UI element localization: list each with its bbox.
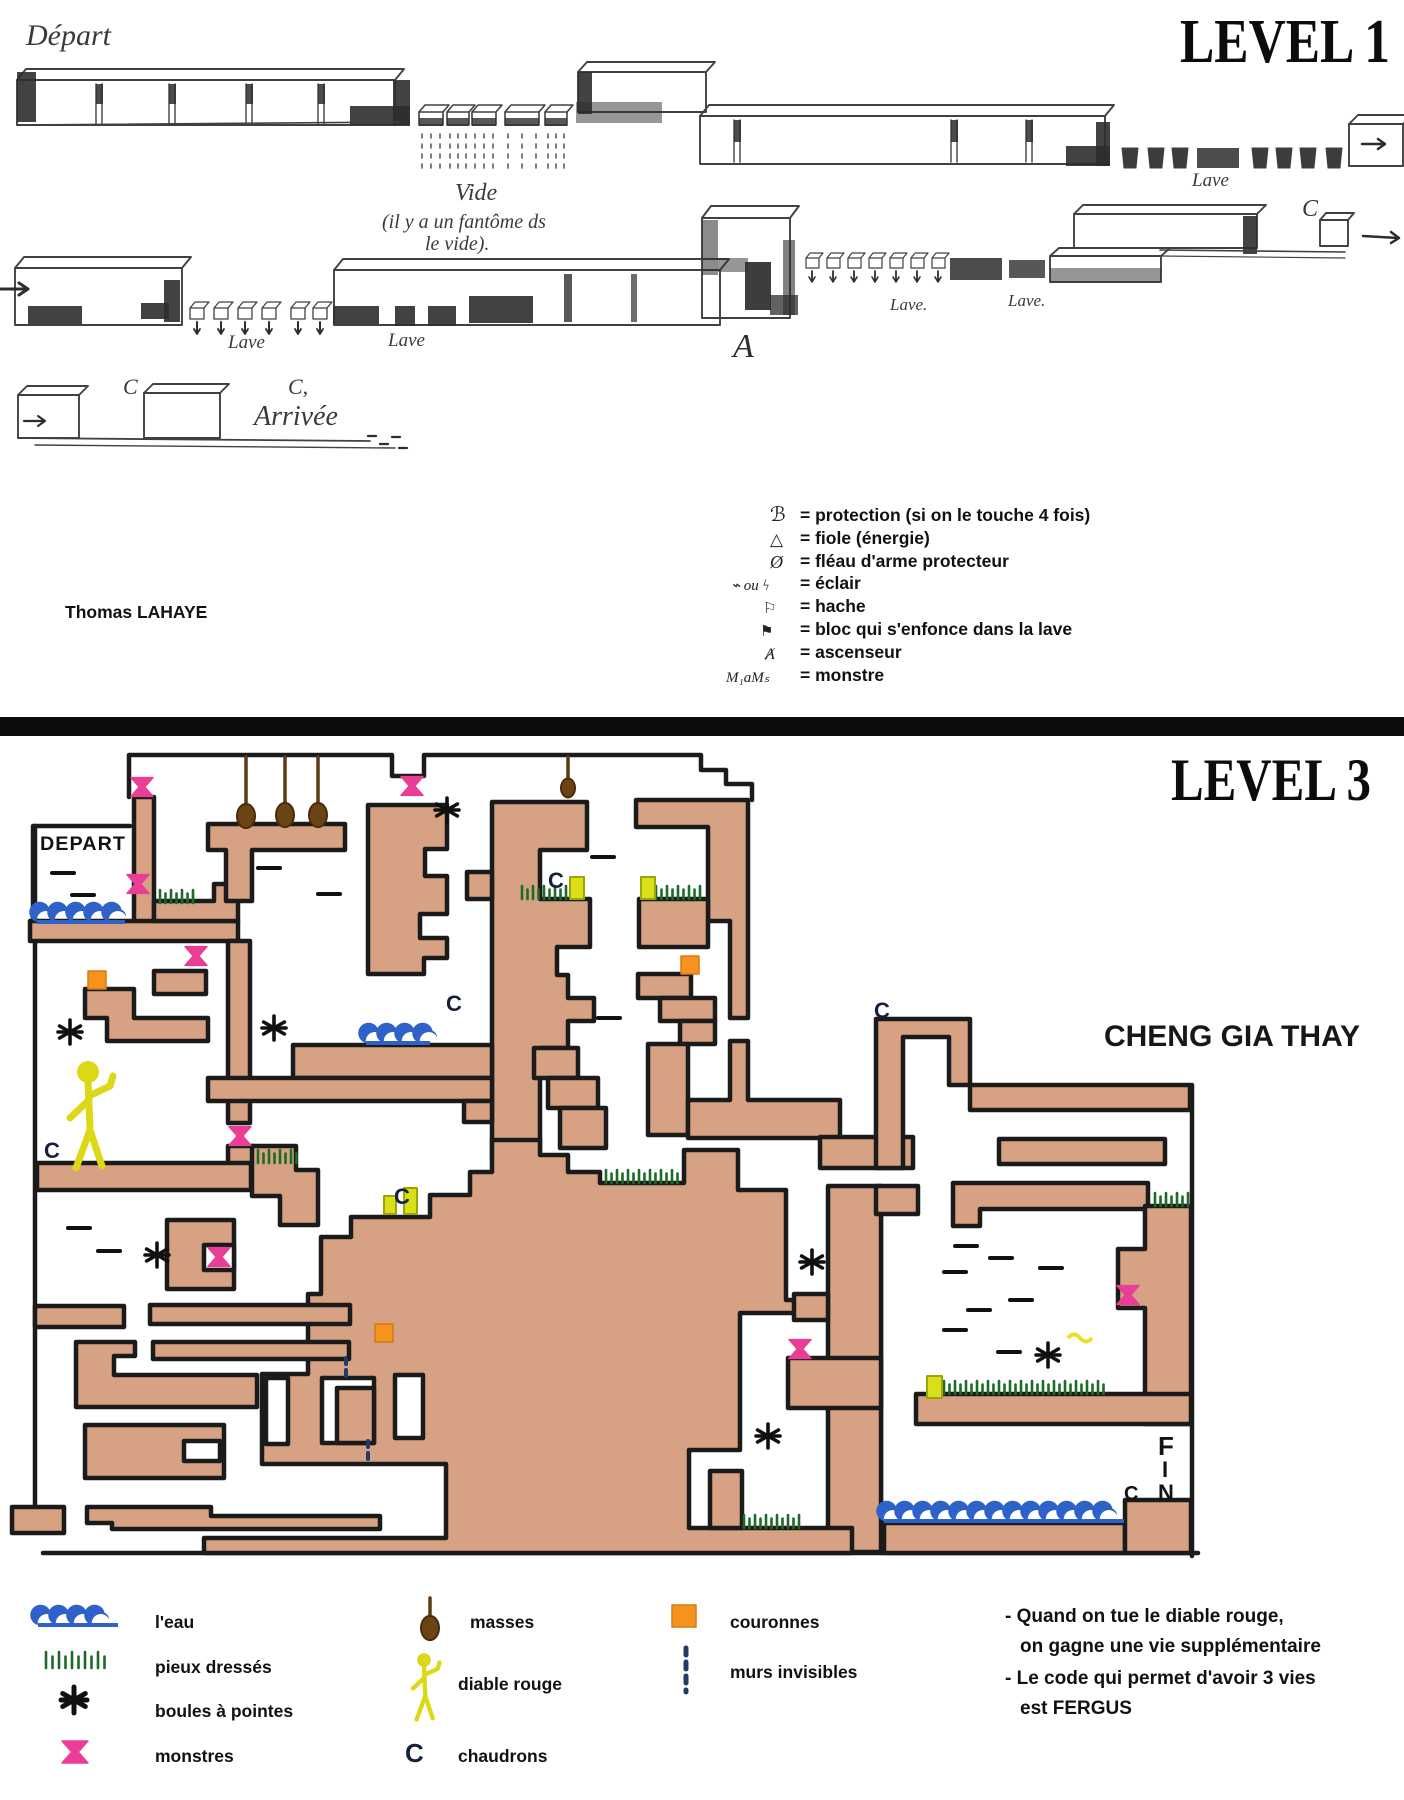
svg-text:est FERGUS: est FERGUS bbox=[1020, 1698, 1132, 1719]
svg-text:C: C bbox=[394, 1184, 410, 1209]
svg-text:= fiole (énergie): = fiole (énergie) bbox=[800, 528, 930, 548]
svg-text:= hache: = hache bbox=[800, 596, 866, 616]
svg-text:pieux dressés: pieux dressés bbox=[155, 1657, 272, 1677]
svg-text:chaudrons: chaudrons bbox=[458, 1746, 548, 1766]
svg-text:Lave.: Lave. bbox=[889, 295, 927, 314]
svg-text:LEVEL 3: LEVEL 3 bbox=[1171, 747, 1371, 813]
svg-text:(il y a un fantôme ds: (il y a un fantôme ds bbox=[382, 211, 546, 233]
svg-text:monstres: monstres bbox=[155, 1746, 234, 1766]
svg-text:- Quand on tue le diable rouge: - Quand on tue le diable rouge, bbox=[1005, 1606, 1284, 1627]
svg-text:Arrivée: Arrivée bbox=[252, 401, 338, 432]
svg-text:A: A bbox=[731, 328, 754, 365]
svg-text:Ⱥ: Ⱥ bbox=[764, 646, 776, 663]
svg-text:△: △ bbox=[770, 530, 784, 549]
svg-text:N: N bbox=[1158, 1480, 1174, 1505]
svg-text:le vide).: le vide). bbox=[425, 233, 489, 255]
svg-text:C,: C, bbox=[288, 374, 308, 399]
svg-text:couronnes: couronnes bbox=[730, 1612, 820, 1632]
svg-text:C: C bbox=[1124, 1483, 1138, 1505]
svg-text:diable rouge: diable rouge bbox=[458, 1674, 562, 1694]
svg-text:- Le code qui permet d'avoir 3: - Le code qui permet d'avoir 3 vies bbox=[1005, 1668, 1316, 1689]
svg-text:l'eau: l'eau bbox=[155, 1612, 194, 1632]
svg-text:on gagne une vie supplémentair: on gagne une vie supplémentaire bbox=[1020, 1636, 1321, 1657]
svg-text:= protection (si on le touche: = protection (si on le touche 4 fois) bbox=[800, 505, 1090, 525]
svg-text:M₁aMₛ: M₁aMₛ bbox=[725, 670, 770, 686]
svg-text:CHENG GIA THAY: CHENG GIA THAY bbox=[1104, 1020, 1360, 1053]
svg-text:⌁ ou ϟ: ⌁ ou ϟ bbox=[731, 578, 770, 594]
svg-text:⚑: ⚑ bbox=[760, 624, 773, 640]
svg-text:C: C bbox=[548, 868, 564, 893]
svg-text:= bloc qui s'enfonce dans la l: = bloc qui s'enfonce dans la lave bbox=[800, 619, 1072, 639]
svg-text:= monstre: = monstre bbox=[800, 665, 884, 685]
svg-text:Thomas LAHAYE: Thomas LAHAYE bbox=[65, 602, 207, 622]
svg-text:I: I bbox=[1162, 1457, 1168, 1482]
svg-text:C: C bbox=[405, 1738, 424, 1768]
svg-text:LEVEL 1: LEVEL 1 bbox=[1180, 8, 1390, 76]
svg-text:= ascenseur: = ascenseur bbox=[800, 642, 902, 662]
svg-text:Départ: Départ bbox=[25, 19, 112, 52]
svg-text:C: C bbox=[44, 1138, 60, 1163]
svg-text:murs invisibles: murs invisibles bbox=[730, 1662, 858, 1682]
svg-text:boules à pointes: boules à pointes bbox=[155, 1701, 293, 1721]
svg-text:C: C bbox=[446, 991, 462, 1016]
svg-text:⚐: ⚐ bbox=[763, 601, 776, 617]
svg-text:masses: masses bbox=[470, 1612, 534, 1632]
svg-text:Lave: Lave bbox=[387, 330, 425, 351]
svg-text:= fléau d'arme protecteur: = fléau d'arme protecteur bbox=[800, 551, 1009, 571]
svg-text:Ø: Ø bbox=[769, 552, 784, 572]
svg-text:Lave: Lave bbox=[227, 332, 265, 353]
svg-text:Vide: Vide bbox=[455, 180, 498, 206]
svg-text:Lave: Lave bbox=[1191, 170, 1229, 191]
svg-text:C: C bbox=[874, 998, 890, 1023]
svg-text:ℬ: ℬ bbox=[770, 504, 786, 526]
svg-text:Lave.: Lave. bbox=[1007, 291, 1045, 310]
svg-text:C: C bbox=[1302, 196, 1319, 222]
svg-text:= éclair: = éclair bbox=[800, 573, 861, 593]
svg-text:DEPART: DEPART bbox=[40, 834, 126, 855]
svg-text:C: C bbox=[123, 374, 138, 399]
